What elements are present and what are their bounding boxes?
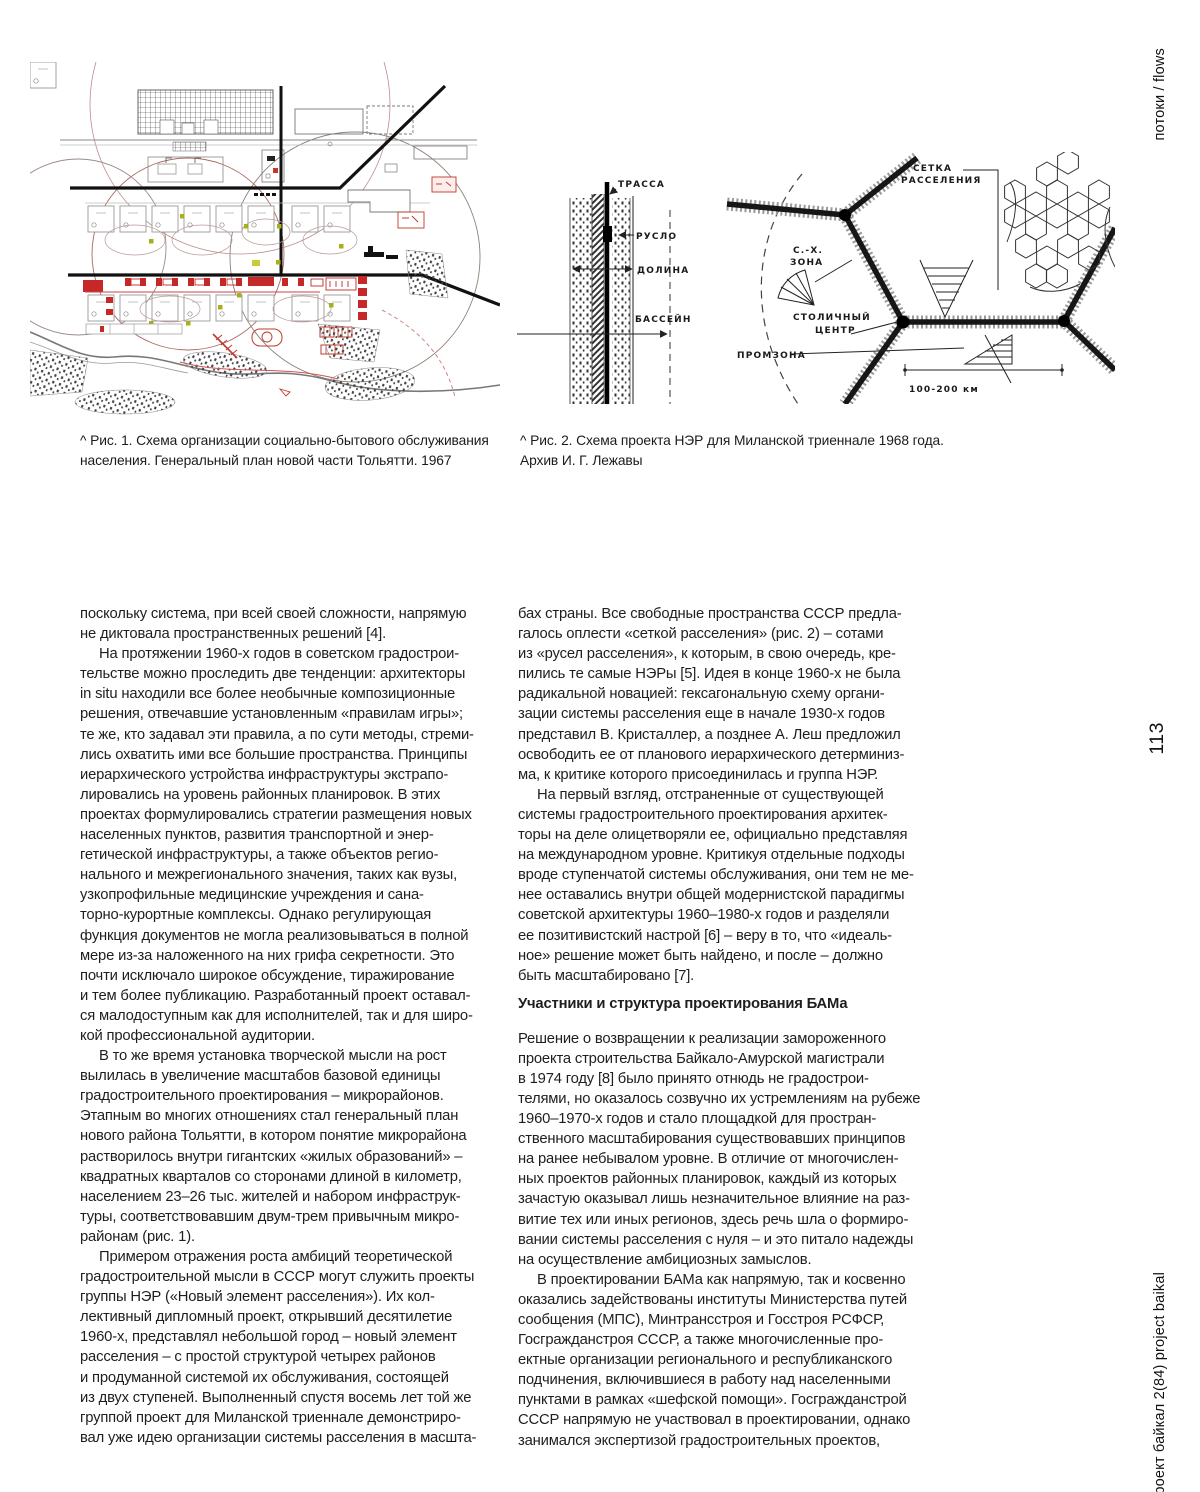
fig2-label-bassein: БАССЕЙН <box>635 313 692 325</box>
fig2-label-setka-1: СЕТКА <box>913 164 952 174</box>
paragraph: бах страны. Все свободные пространства С… <box>518 604 942 785</box>
fig2-label-capital-2: ЦЕНТР <box>815 326 856 336</box>
fig2-label-shzona-2: ЗОНА <box>790 258 823 268</box>
fig2-label-setka-2: РАССЕЛЕНИЯ <box>901 176 982 186</box>
paragraph: В то же время установка творческой мысли… <box>80 1046 504 1247</box>
section-heading: Участники и структура проектирования БАМ… <box>518 994 942 1014</box>
paragraph: В проектировании БАМа как напрямую, так … <box>518 1270 942 1451</box>
paragraph: На первый взгляд, отстраненные от сущест… <box>518 785 942 986</box>
text-column-right: бах страны. Все свободные пространства С… <box>518 604 942 1451</box>
paragraph: На протяжении 1960-х годов в советском г… <box>80 644 504 1046</box>
paragraph: Примером отражения роста амбиций теорети… <box>80 1247 504 1448</box>
paragraph: поскольку система, при всей своей сложно… <box>80 604 504 644</box>
fig2-label-ruslo: РУСЛО <box>636 232 677 242</box>
figure-1-caption: ^ Рис. 1. Схема организации социально-бы… <box>80 431 500 470</box>
paragraph: Решение о возвращении к реализации замор… <box>518 1029 942 1270</box>
fig2-label-shzona-1: С.-Х. <box>793 246 823 256</box>
fig2-label-promzona: ПРОМЗОНА <box>737 351 806 361</box>
text-column-left: поскольку система, при всей своей сложно… <box>80 604 504 1448</box>
margin-section-label: потоки / flows <box>1152 48 1168 141</box>
journal-page: ТРАССА РУСЛО ДОЛИНА БАССЕЙН <box>0 0 1200 1492</box>
fig2-label-scale: 100-200 км <box>909 385 979 395</box>
figure-1-plan <box>30 62 500 420</box>
figure-2-caption: ^ Рис. 2. Схема проекта НЭР для Миланско… <box>520 431 960 470</box>
fig2-label-dolina: ДОЛИНА <box>637 266 689 276</box>
fig2-label-capital-1: СТОЛИЧНЫЙ <box>793 311 871 323</box>
figure-2-ner-scheme: ТРАССА РУСЛО ДОЛИНА БАССЕЙН <box>515 152 1115 404</box>
page-number: 113 <box>1146 722 1169 755</box>
fig2-label-trassa: ТРАССА <box>618 180 665 190</box>
margin-journal-label: проект байкал 2(84) project baikal <box>1152 1272 1168 1492</box>
